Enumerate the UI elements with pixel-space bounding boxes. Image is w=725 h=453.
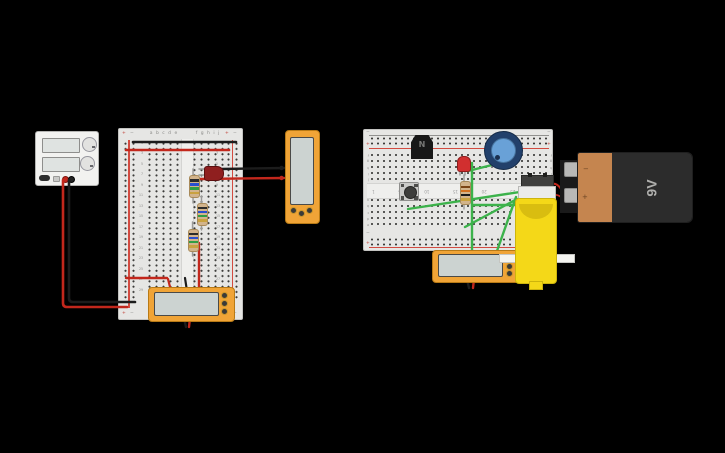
resistor-band (189, 233, 198, 236)
resistor-band (190, 179, 199, 182)
resistor-band (190, 192, 199, 195)
resistor-band (461, 190, 470, 193)
resistor-1[interactable] (189, 175, 200, 198)
battery-voltage-label: 9V (644, 179, 660, 196)
pushbutton[interactable] (399, 182, 419, 201)
multimeter-bottom-left[interactable] (148, 287, 235, 322)
wire-meter1-black[interactable] (221, 168, 284, 169)
multimeter-port[interactable] (221, 300, 228, 307)
resistor-band (461, 198, 470, 201)
pushbutton-cap[interactable] (404, 186, 417, 199)
resistor-band (198, 215, 207, 218)
motor-terminal[interactable] (528, 173, 532, 177)
pushbutton-leg (401, 184, 405, 188)
potentiometer[interactable] (484, 131, 523, 170)
resistor-band (198, 211, 207, 214)
multimeter-port[interactable] (506, 270, 513, 277)
circuit-canvas: + − a b c d e f g h i j + − + − a b c d … (0, 0, 725, 453)
resistor-band (189, 237, 198, 240)
resistor-band (198, 219, 207, 222)
multimeter-port[interactable] (290, 207, 297, 214)
motor-mount-tab (529, 281, 543, 290)
resistor-band (190, 183, 199, 186)
resistor-band (189, 241, 198, 244)
resistor-band (461, 194, 470, 197)
pushbutton-leg (401, 196, 405, 200)
battery-dark-section: 9V (612, 153, 692, 222)
motor-cap (519, 204, 553, 219)
multimeter-screen (438, 254, 503, 277)
battery-plus-symbol: + (582, 193, 588, 201)
resistor-band (190, 187, 199, 190)
multimeter-port[interactable] (221, 308, 228, 315)
led-right[interactable] (457, 156, 471, 172)
wire-psu-negative[interactable] (69, 180, 135, 302)
multimeter-port[interactable] (221, 292, 228, 299)
led-left[interactable] (204, 166, 224, 181)
transistor-label: N (419, 140, 426, 159)
resistor-band (461, 186, 470, 189)
multimeter-vertical[interactable] (285, 130, 320, 224)
wire-layer (0, 0, 725, 453)
motor-axle-right[interactable] (555, 254, 575, 263)
potentiometer-indicator (495, 155, 500, 160)
multimeter-port[interactable] (506, 263, 513, 270)
resistor-2[interactable] (197, 203, 208, 226)
resistor-band (189, 245, 198, 248)
resistor-3[interactable] (188, 229, 199, 252)
multimeter-port[interactable] (298, 210, 305, 217)
battery-minus-symbol: − (583, 165, 589, 173)
multimeter-screen (154, 292, 219, 316)
resistor-right[interactable] (460, 181, 471, 205)
battery-copper-section (578, 153, 612, 222)
multimeter-port[interactable] (306, 207, 313, 214)
multimeter-screen (290, 137, 314, 205)
transistor[interactable]: N (411, 135, 433, 159)
probe-tip-black[interactable] (279, 166, 283, 170)
battery-9v[interactable]: 9V − + (577, 152, 693, 223)
dc-motor-body[interactable] (515, 198, 557, 284)
probe-tip-red[interactable] (279, 176, 283, 180)
wire-psu-positive[interactable] (63, 180, 127, 307)
resistor-band (198, 207, 207, 210)
motor-terminal[interactable] (543, 173, 547, 177)
